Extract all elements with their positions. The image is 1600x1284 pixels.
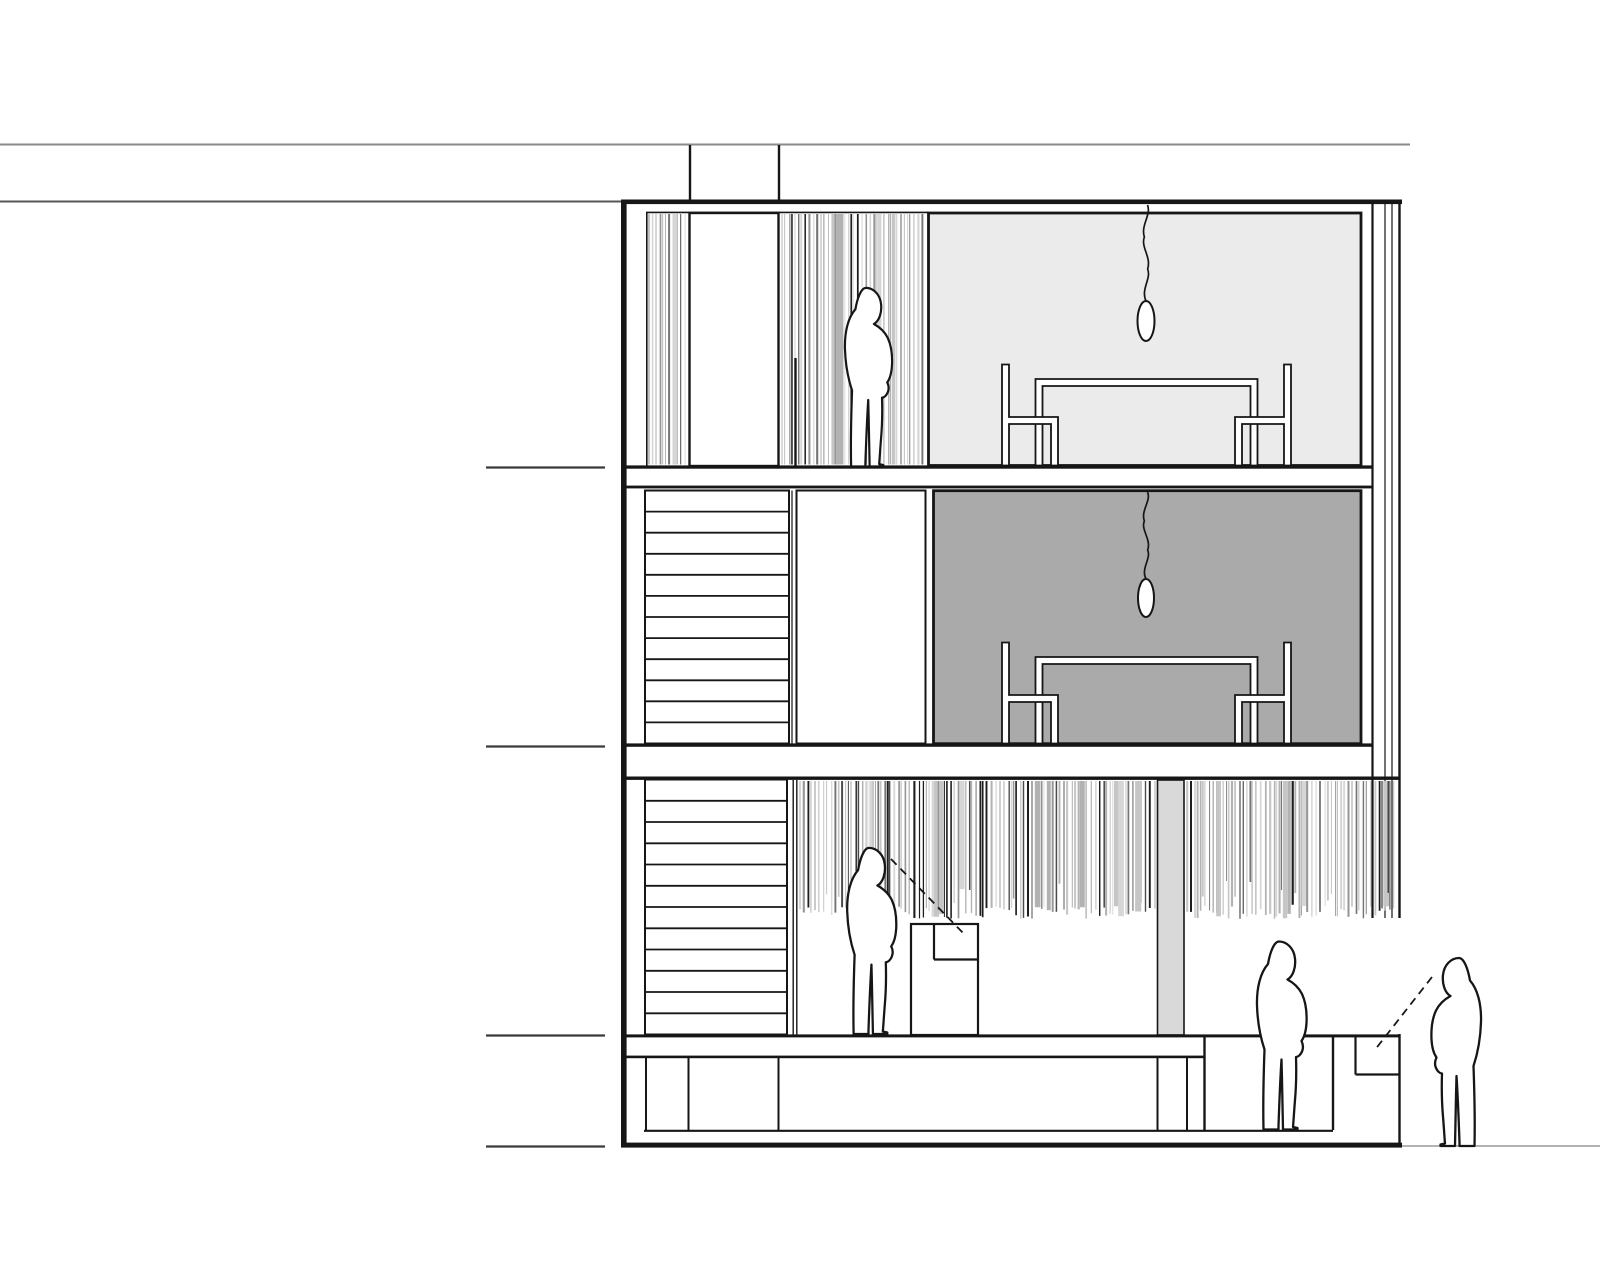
architectural-section-canvas [0,0,1600,1284]
floor-slab-2-bottom-line [626,486,1372,489]
stair-treads-first-floor [645,512,789,723]
second-floor [626,212,1372,488]
sight-line-street [1374,977,1432,1051]
curtain-hatch-upper-left [649,214,685,465]
level-ticks [486,468,605,1147]
figure-courtyard [1257,942,1307,1130]
floor-slab-1-top-line [626,743,1372,746]
wall-panel-first-floor [797,491,926,744]
base-edge [621,1143,1402,1148]
lamp-bulb [1138,579,1154,617]
ground-slab-bottom-line [626,1056,1205,1059]
counter-body [911,924,978,1035]
left-wall [621,200,627,1148]
kitchen-counter [911,924,978,1035]
roof-edge [621,200,1402,205]
figure-street [1431,958,1481,1146]
foundation-strip [644,1058,1333,1131]
curtain-opening [690,213,779,466]
structural-column [1158,780,1185,1035]
section-drawing [0,0,1600,1284]
lamp-bulb [1138,301,1155,341]
figure-second-floor [845,288,892,467]
stair-treads-ground-floor [645,801,787,1014]
floor-slab-2-top-line [626,465,1372,468]
